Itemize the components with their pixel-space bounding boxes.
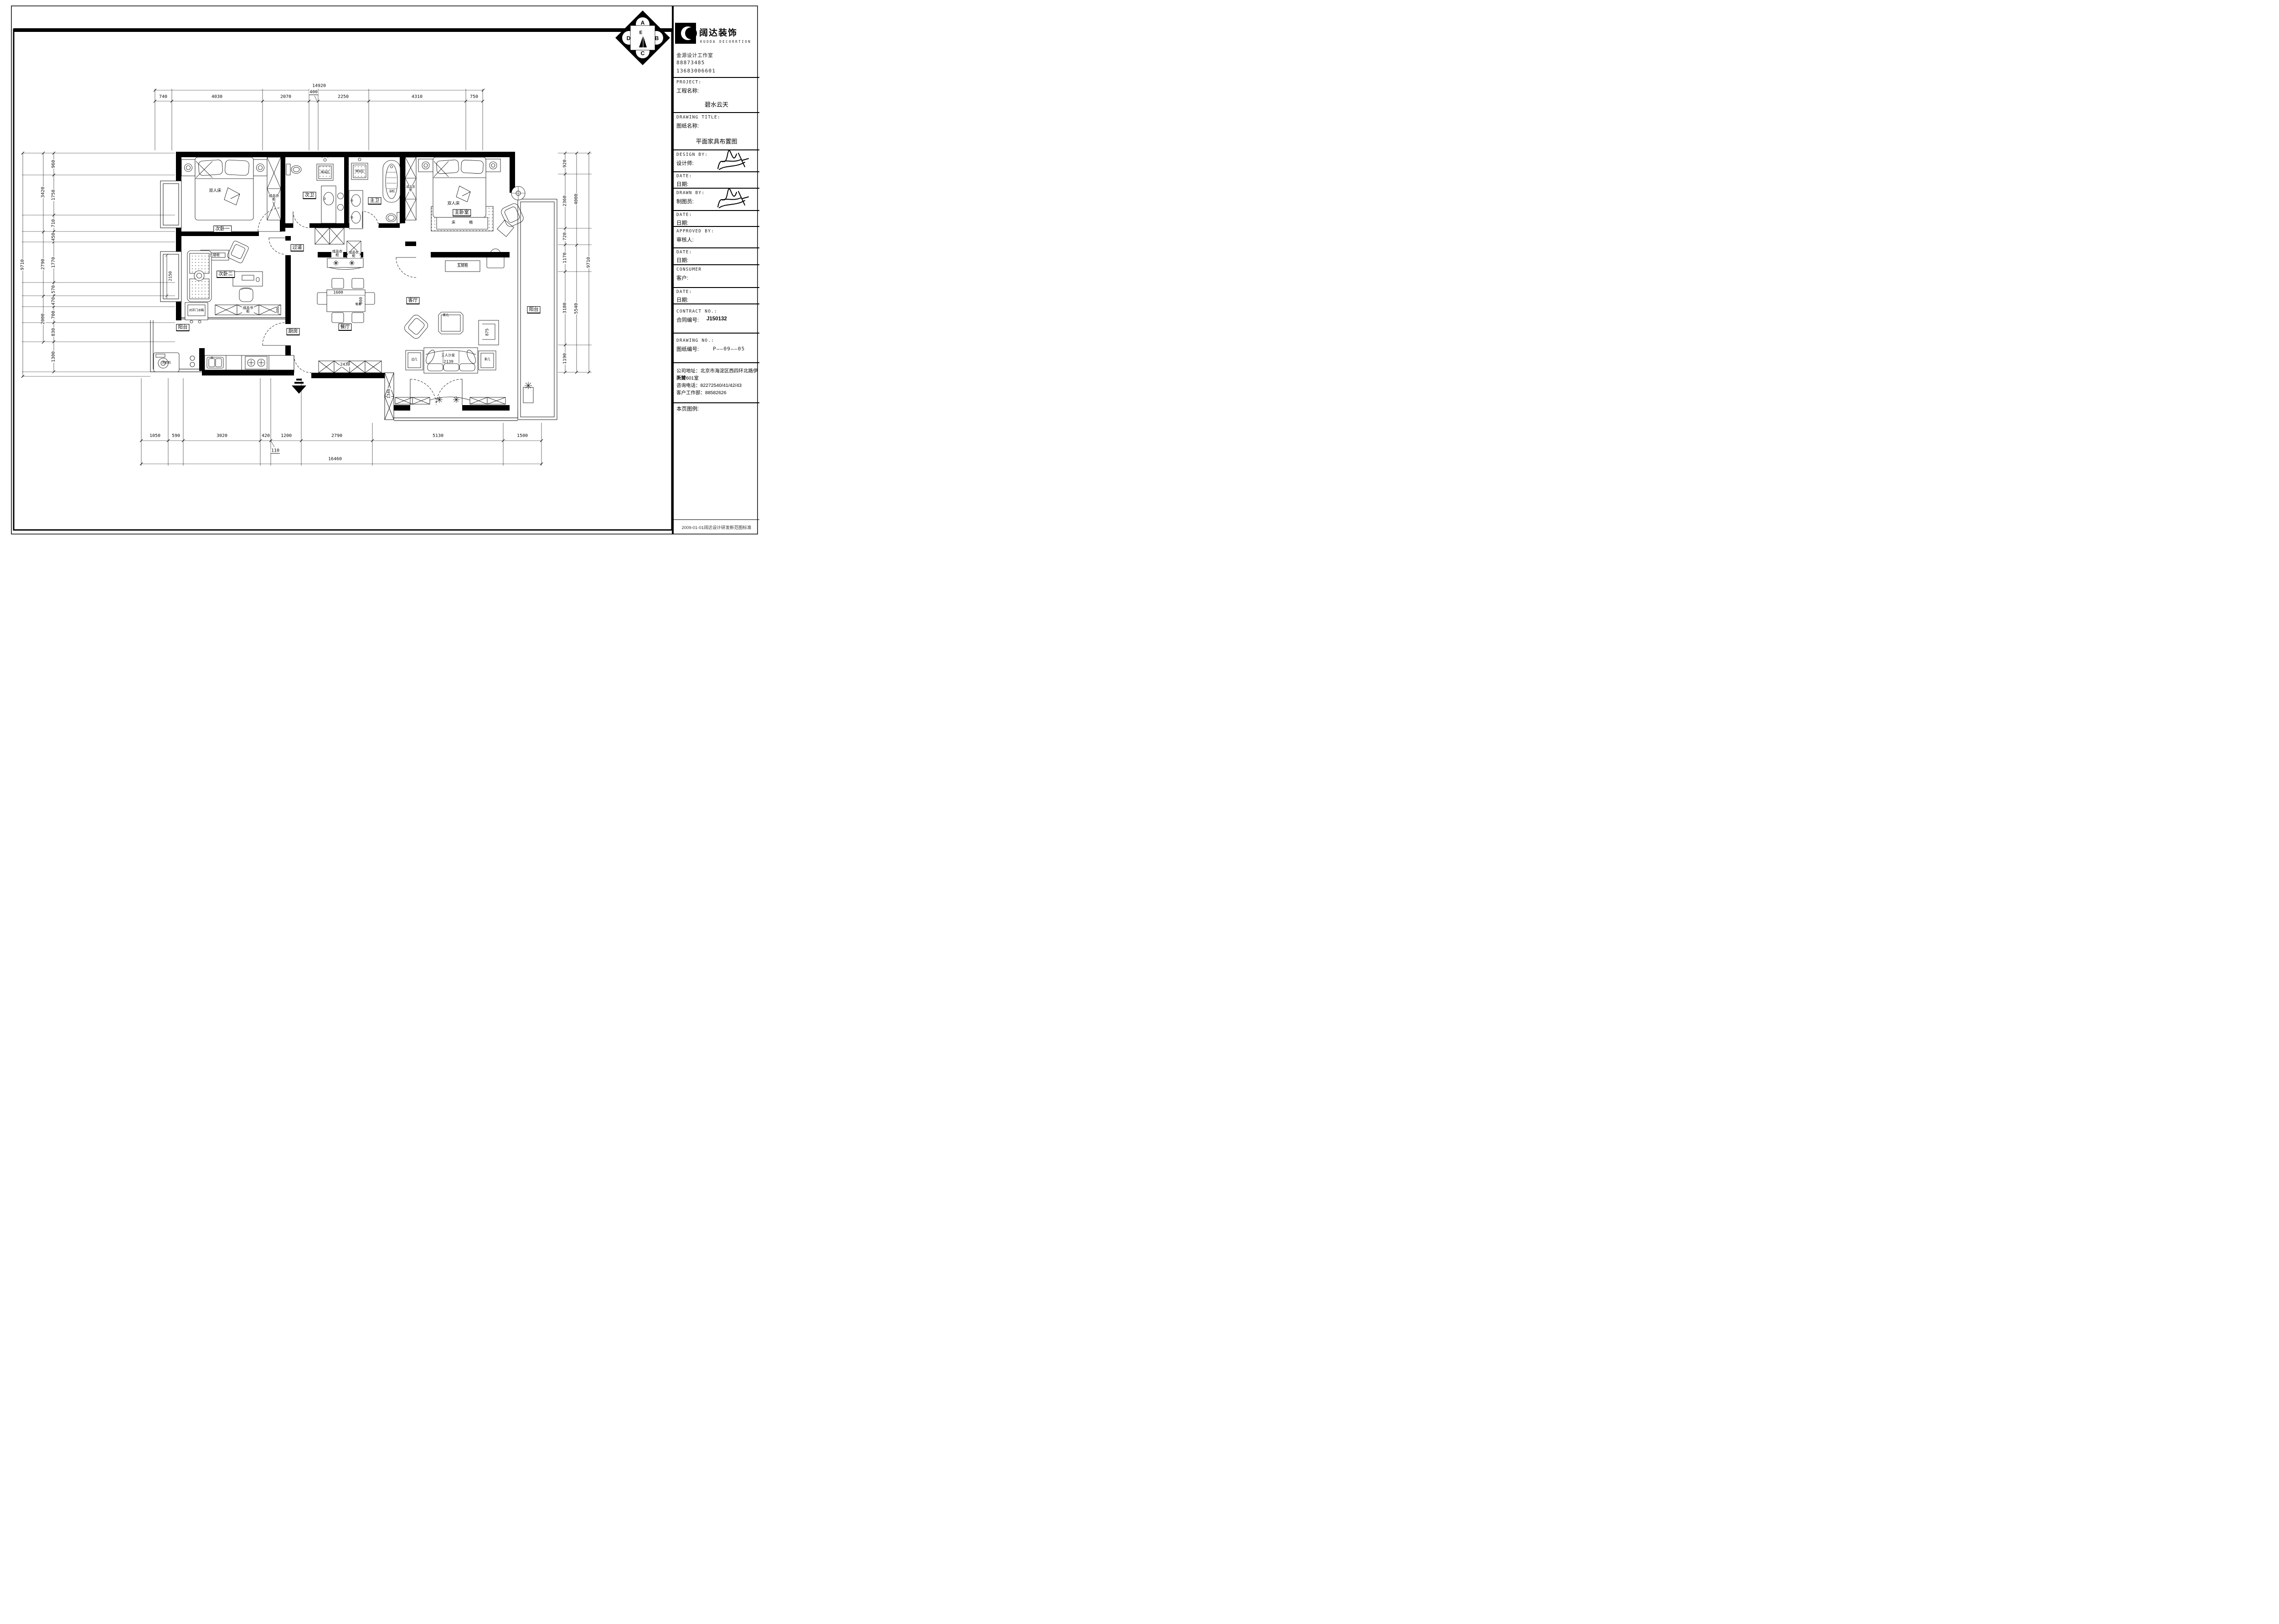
label-washer: 洗衣机 — [162, 361, 171, 364]
dim-top-total: 14920 — [312, 84, 326, 88]
label-wardrobe-bedroom1: 成品衣柜 — [268, 194, 280, 202]
drawn-by-label-cn: 制图员: — [676, 198, 694, 205]
design-by-label-cn: 设计师: — [676, 159, 694, 167]
room-label-master-bedroom: 主卧室 — [453, 209, 471, 216]
date2-label-cn: 日期: — [676, 219, 688, 226]
dim-left-mid-1: 2790 — [41, 258, 46, 270]
date1-label-en: DATE: — [676, 174, 692, 179]
room-label-hallway: 过道 — [291, 244, 304, 252]
room-label-balcony-left: 阳台 — [176, 324, 190, 331]
compass-emblem — [615, 10, 670, 65]
room-label-bath-master: 主卫 — [368, 197, 382, 205]
consumer-label-en: CONSUMER — [676, 267, 701, 272]
label-fridge: 对开门冰箱 — [189, 308, 204, 312]
dim-bedroom2-window: 2150 — [169, 271, 173, 282]
dim-right-inner-4: 3180 — [563, 302, 567, 314]
compass-letter-d: D — [627, 35, 631, 41]
dim-top-0: 740 — [159, 95, 168, 99]
label-side-table-right: 茶几 — [485, 358, 490, 361]
date4-label-cn: 日期: — [676, 296, 688, 303]
date1-label-cn: 日期: — [676, 180, 688, 188]
dim-left-inner-3: 450 — [52, 232, 56, 242]
label-wardrobe-master: 成品衣柜 — [406, 185, 416, 192]
dim-right-inner-1: 2360 — [563, 195, 567, 207]
dim-left-inner-1: 1750 — [52, 189, 56, 201]
label-coffee-table: 茶几 — [443, 313, 449, 317]
dim-right-inner-3: 1170 — [563, 252, 567, 264]
label-bathtub: 浴缸 — [389, 190, 395, 193]
dim-right-inner-0: 920 — [563, 159, 567, 168]
dim-bottom-3: 420 — [261, 434, 270, 438]
label-double-bed-master: 双人床 — [447, 201, 459, 206]
room-label-bedroom2: 次卧二 — [217, 271, 235, 278]
dim-left-outer: 9710 — [21, 259, 25, 271]
dim-left-mid-0: 3420 — [41, 186, 46, 198]
date3-label-cn: 日期: — [676, 257, 688, 264]
drawn-by-label-en: DRAWN BY: — [676, 190, 705, 195]
label-shower-master: 淋浴区 — [355, 170, 364, 173]
dim-bottom-5: 2790 — [331, 434, 343, 438]
project-value: 碧水云天 — [705, 100, 728, 108]
dim-armchair: 875 — [486, 328, 490, 336]
dim-bottom-4: 1200 — [280, 434, 292, 438]
legend-label: 本页图例: — [676, 405, 699, 412]
company-name: 阔达装饰 — [699, 26, 737, 38]
label-double-bed-1: 双人床 — [209, 189, 221, 193]
dim-left-inner-4: 1770 — [52, 257, 56, 268]
dim-bottom-0: 1050 — [149, 434, 161, 438]
studio-name: 金源设计工作室 — [676, 51, 713, 59]
drawing-no-label-en: DRAWING NO.: — [676, 338, 714, 343]
dim-left-inner-7: 700 — [52, 310, 56, 319]
project-label-en: PROJECT: — [676, 80, 701, 85]
title-block: 阔达装饰 KUODA DECORRTION 金源设计工作室 88873485 1… — [672, 6, 759, 534]
label-wardrobe-hall-2: 成品衣柜 — [348, 251, 360, 258]
compass-letter-b: B — [655, 35, 659, 41]
dim-left-inner-8: 830 — [52, 328, 56, 337]
dim-top-1: 4030 — [211, 95, 223, 99]
room-label-living: 客厅 — [407, 297, 420, 304]
dim-left-inner-5: 570 — [52, 285, 56, 294]
dim-right-inner-5: 1190 — [563, 353, 567, 365]
dim-bottom-2: 3020 — [216, 434, 228, 438]
compass-letter-e: E — [639, 31, 643, 36]
address-line-2: 大厦601室 — [676, 375, 699, 381]
room-label-kitchen: 厨房 — [287, 328, 300, 335]
room-label-dining: 餐厅 — [339, 324, 352, 331]
date4-label-en: DATE: — [676, 289, 692, 294]
consumer-label-cn: 客户: — [676, 274, 688, 282]
dim-top-3: 400 — [309, 90, 318, 95]
dim-bottom-6: 5130 — [432, 434, 444, 438]
drawing-no-value: P——09——05 — [713, 346, 745, 352]
room-label-bedroom1: 次卧一 — [213, 226, 232, 233]
studio-phone-2: 13683006601 — [676, 68, 716, 74]
dim-left-inner-0: 960 — [52, 159, 56, 169]
date3-label-en: DATE: — [676, 250, 692, 255]
room-label-bath-second: 次卫 — [303, 192, 316, 199]
dim-bottom-total: 16460 — [328, 457, 342, 462]
dim-bookcase: 400 — [276, 306, 280, 313]
dim-top-5: 4310 — [411, 95, 423, 99]
dim-sofa-width: 2139 — [443, 360, 454, 365]
dim-left-inner-9: 1300 — [52, 351, 56, 363]
dim-right-outer: 9710 — [587, 257, 591, 268]
company-name-en: KUODA DECORRTION — [700, 40, 751, 44]
drawing-no-label-cn: 图纸编号: — [676, 345, 699, 353]
label-chest-bedroom2: 五屉柜 — [210, 253, 220, 257]
dim-left-mid-2: 2000 — [41, 313, 46, 325]
dim-top-4: 2250 — [337, 95, 349, 99]
studio-phone-1: 88873485 — [676, 60, 705, 66]
label-side-table-left: 边几 — [412, 358, 418, 361]
date2-label-en: DATE: — [676, 212, 692, 217]
room-label-balcony-right: 阳台 — [527, 306, 541, 313]
compass-letter-a: A — [641, 20, 645, 26]
address-line-4: 客户工作部：88582626 — [676, 389, 727, 396]
contract-label-cn: 合同编号: — [676, 316, 699, 324]
dim-left-inner-6: 470 — [52, 297, 56, 306]
label-sofa: 三人沙发 — [441, 354, 455, 357]
contract-value: J150132 — [706, 316, 727, 322]
compass-letter-c: C — [641, 50, 645, 57]
project-label-cn: 工程名称: — [676, 87, 699, 94]
dim-right-mid-1: 5540 — [574, 303, 579, 314]
entry-arrow — [292, 379, 306, 394]
dim-bottom-1: 590 — [171, 434, 180, 438]
dim-top-6: 750 — [469, 95, 479, 99]
dim-left-inner-2: 710 — [52, 219, 56, 228]
contract-label-en: CONTRACT NO.: — [676, 309, 717, 314]
label-wardrobe-hall-1: 成品衣柜 — [331, 250, 343, 257]
footer-note: 2009-01-01阔达设计研发新范图标准 — [681, 524, 751, 530]
label-shower-second: 淋浴区 — [320, 170, 330, 174]
dim-bottom-offset: 110 — [271, 449, 280, 454]
dim-hall-column: 1340 — [387, 388, 392, 399]
dim-right-mid-0: 4000 — [574, 193, 579, 205]
design-by-label-en: DESIGN BY: — [676, 152, 708, 157]
drawing-title-label-cn: 图纸名称: — [676, 122, 699, 129]
drawing-title-value: 平面家具布置图 — [696, 137, 737, 145]
drawing-sheet: 14920 740 4030 2070 400 2250 4310 750 10… — [0, 0, 766, 541]
dim-dining-width: 1600 — [333, 291, 344, 295]
plan-linework — [0, 0, 766, 541]
approved-by-label-cn: 审核人: — [676, 236, 694, 243]
label-bed-bench: 床榻 — [438, 221, 486, 225]
drawing-title-label-en: DRAWING TITLE: — [676, 115, 721, 120]
label-bookcase: 成品书柜 — [242, 306, 254, 314]
dim-cabinet-row: 2430 — [340, 363, 351, 367]
dim-right-inner-2: 720 — [563, 232, 567, 241]
approved-by-label-en: APPROVED BY: — [676, 229, 714, 234]
label-dining-table: 餐桌 — [356, 303, 361, 306]
dim-bottom-7: 1500 — [516, 434, 528, 438]
address-line-3: 咨询电话：82272540/41/42/43 — [676, 382, 742, 389]
label-chest-master: 五屉柜 — [457, 264, 468, 268]
dim-top-2: 2070 — [280, 95, 292, 99]
